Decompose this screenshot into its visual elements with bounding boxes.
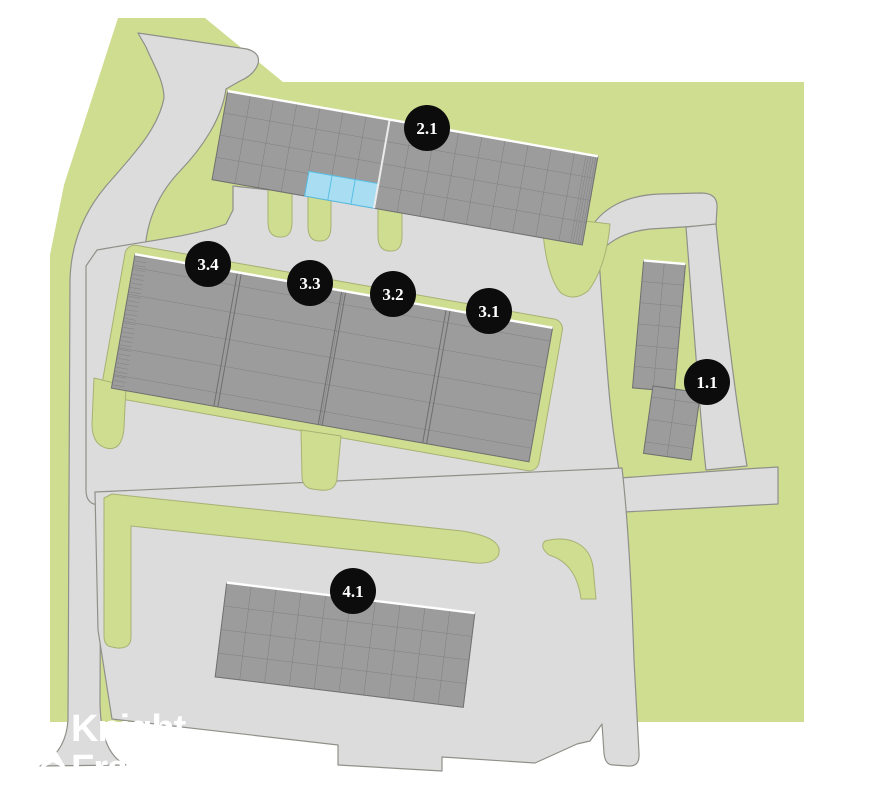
unit-marker[interactable]: 4.1: [330, 568, 376, 614]
unit-marker[interactable]: 3.4: [185, 241, 231, 287]
unit-marker-label: 3.3: [299, 274, 320, 293]
unit-marker-label: 3.4: [197, 255, 219, 274]
watermark-line2: Frank: [71, 748, 171, 790]
site-plan-map: 2.13.43.33.23.11.14.1 Knight Frank: [0, 0, 869, 800]
unit-marker[interactable]: 3.2: [370, 271, 416, 317]
unit-marker-label: 3.1: [478, 302, 499, 321]
site-plan-page: 2.13.43.33.23.11.14.1 Knight Frank: [0, 0, 869, 800]
unit-marker[interactable]: 2.1: [404, 105, 450, 151]
unit-marker-label: 2.1: [416, 119, 437, 138]
unit-marker[interactable]: 3.3: [287, 260, 333, 306]
verge-finger-south: [301, 430, 341, 490]
unit-marker[interactable]: 3.1: [466, 288, 512, 334]
unit-marker-label: 1.1: [696, 373, 717, 392]
unit-marker-label: 3.2: [382, 285, 403, 304]
watermark-line1: Knight: [71, 708, 187, 750]
verge-finger-1: [268, 186, 292, 237]
unit-marker[interactable]: 1.1: [684, 359, 730, 405]
unit-marker-label: 4.1: [342, 582, 363, 601]
